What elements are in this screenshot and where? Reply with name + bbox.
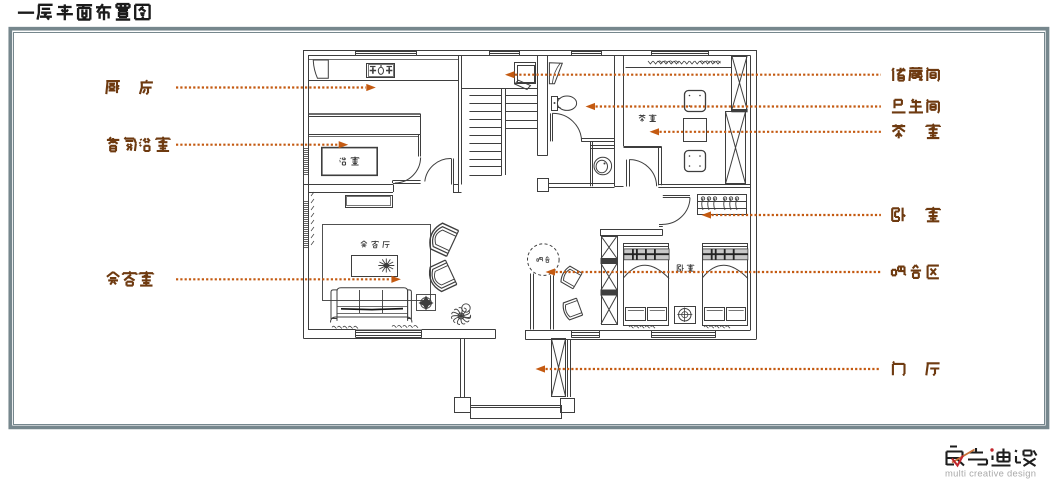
svg-text:multi creative design: multi creative design	[945, 468, 1036, 479]
